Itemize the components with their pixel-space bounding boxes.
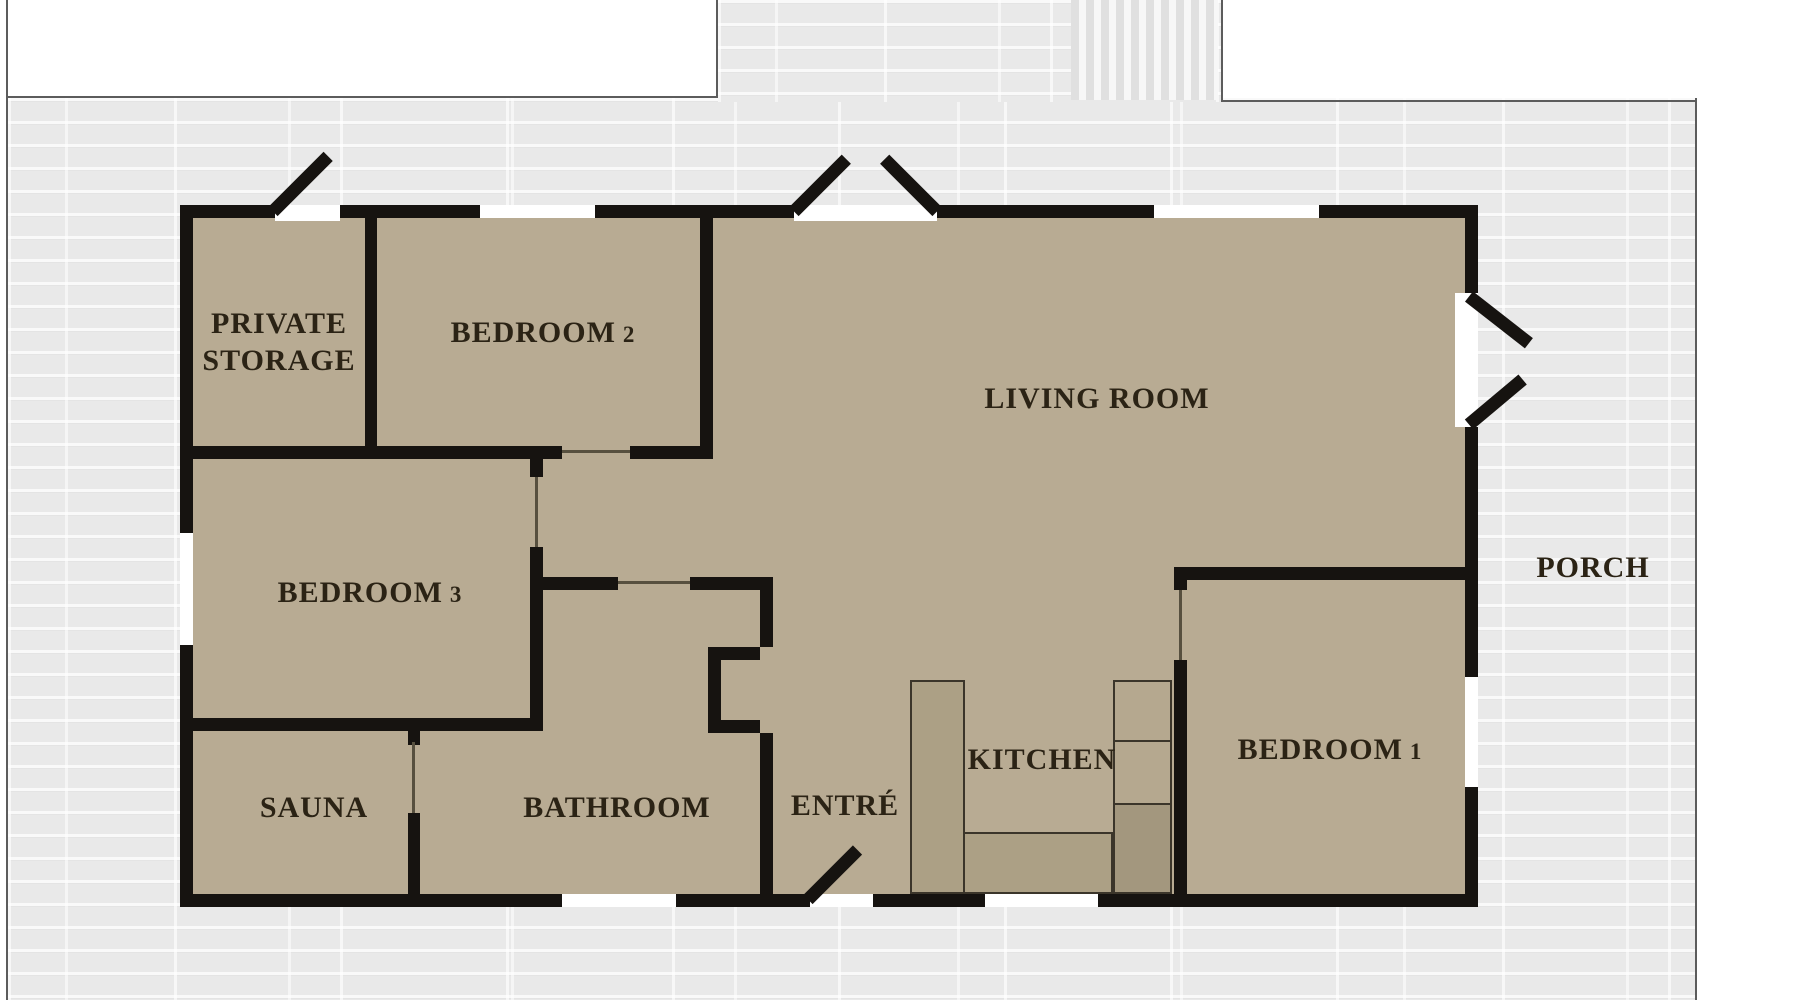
wall-bedroom2-right [700,218,713,459]
door-line-bedroom1 [1179,590,1182,660]
kitchen-counter-bottom [963,832,1113,894]
door-opening-main-entrance [794,205,937,221]
niche-bottom-wall [708,720,760,733]
window-right-bedroom1 [1465,677,1478,787]
room-label-porch: PORCH [1536,551,1649,585]
room-label-private-storage: PRIVATE STORAGE [202,305,355,379]
room-label-sauna-text: SAUNA [260,791,368,824]
wall-sauna-right-bottom [408,813,420,894]
wall-top-seg2 [340,205,480,218]
room-label-bedroom-1: BEDROOM1 [1238,733,1423,767]
room-label-bedroom-3: BEDROOM3 [278,576,463,610]
background-left-edge-line [6,0,8,1000]
room-label-entre: ENTRÉ [791,789,899,823]
room-label-living-room: LIVING ROOM [984,382,1209,416]
wall-left-seg2 [180,645,193,907]
room-label-kitchen: KITCHEN [968,743,1117,777]
room-label-bedroom-3-num: 3 [450,582,463,607]
door-line-bathroom [618,581,690,584]
kitchen-counter-stack-top [1113,680,1172,742]
wall-top-seg1 [180,205,275,218]
window-top-bedroom2 [480,205,595,218]
cutout-left-bottom-line [8,96,718,98]
wall-bedroom3-right-bottom [530,547,543,731]
kitchen-counter-stack-bottom [1113,803,1172,894]
kitchen-counter-stack-middle [1113,740,1172,805]
room-label-kitchen-text: KITCHEN [968,743,1117,776]
wall-bedroom1-left-lower [1174,660,1187,894]
wall-bedroom3-right-top [530,459,543,477]
wall-right-seg3 [1465,787,1478,907]
door-line-bedroom2 [562,450,630,453]
window-bottom-kitchen [985,894,1098,907]
wall-band1-left [193,446,562,459]
room-label-bedroom-1-text: BEDROOM [1238,733,1403,766]
wall-top-seg5 [1319,205,1478,218]
room-label-bedroom-2-num: 2 [623,322,636,347]
window-bottom-bathroom [562,894,676,907]
room-label-bedroom-2: BEDROOM2 [451,316,636,350]
room-label-bathroom: BATHROOM [523,791,710,825]
room-label-living-room-text: LIVING ROOM [984,382,1209,415]
background-right-edge-line [1695,98,1697,1000]
wall-entre-left-lower [760,733,773,894]
wall-bedroom1-top [1174,567,1465,580]
wall-right-seg2 [1465,427,1478,677]
window-left-bedroom3 [180,533,193,645]
wall-bottom-seg2 [676,894,810,907]
room-label-private-storage-line1: PRIVATE [202,305,355,342]
room-label-bedroom-3-text: BEDROOM [278,576,443,609]
wall-top-seg4 [937,205,1154,218]
cutout-right-left-line [1221,0,1223,102]
room-label-entre-text: ENTRÉ [791,789,899,822]
room-label-bathroom-text: BATHROOM [523,791,710,824]
wall-bathroom-top-left [543,577,618,590]
room-label-bedroom-1-num: 1 [1410,739,1423,764]
wall-storage-right [365,218,377,459]
door-line-bedroom3 [535,477,538,547]
floor-plan-canvas: PRIVATE STORAGE BEDROOM2 LIVING ROOM BED… [0,0,1800,1000]
wall-top-seg3 [595,205,794,218]
door-line-sauna [412,742,415,813]
wall-bottom-seg3 [873,894,985,907]
wall-entre-left-upper [760,577,773,647]
door-opening-porch [1455,293,1478,427]
wall-bedroom3-bottom [193,718,543,731]
room-label-private-storage-line2: STORAGE [202,342,355,379]
wall-right-seg1 [1465,205,1478,293]
wall-bottom-seg4 [1098,894,1478,907]
cutout-right-bottom-line [1223,100,1697,102]
room-label-bedroom-2-text: BEDROOM [451,316,616,349]
wall-bedroom1-left-upper [1174,567,1187,590]
room-label-sauna: SAUNA [260,791,368,825]
window-top-livingroom [1154,205,1319,218]
wall-left-seg1 [180,205,193,533]
cutout-left-right-line [716,0,718,98]
kitchen-counter-left [910,680,965,894]
chimney-stripes [1071,0,1218,100]
room-label-porch-text: PORCH [1536,551,1649,584]
wall-bottom-seg1 [180,894,562,907]
